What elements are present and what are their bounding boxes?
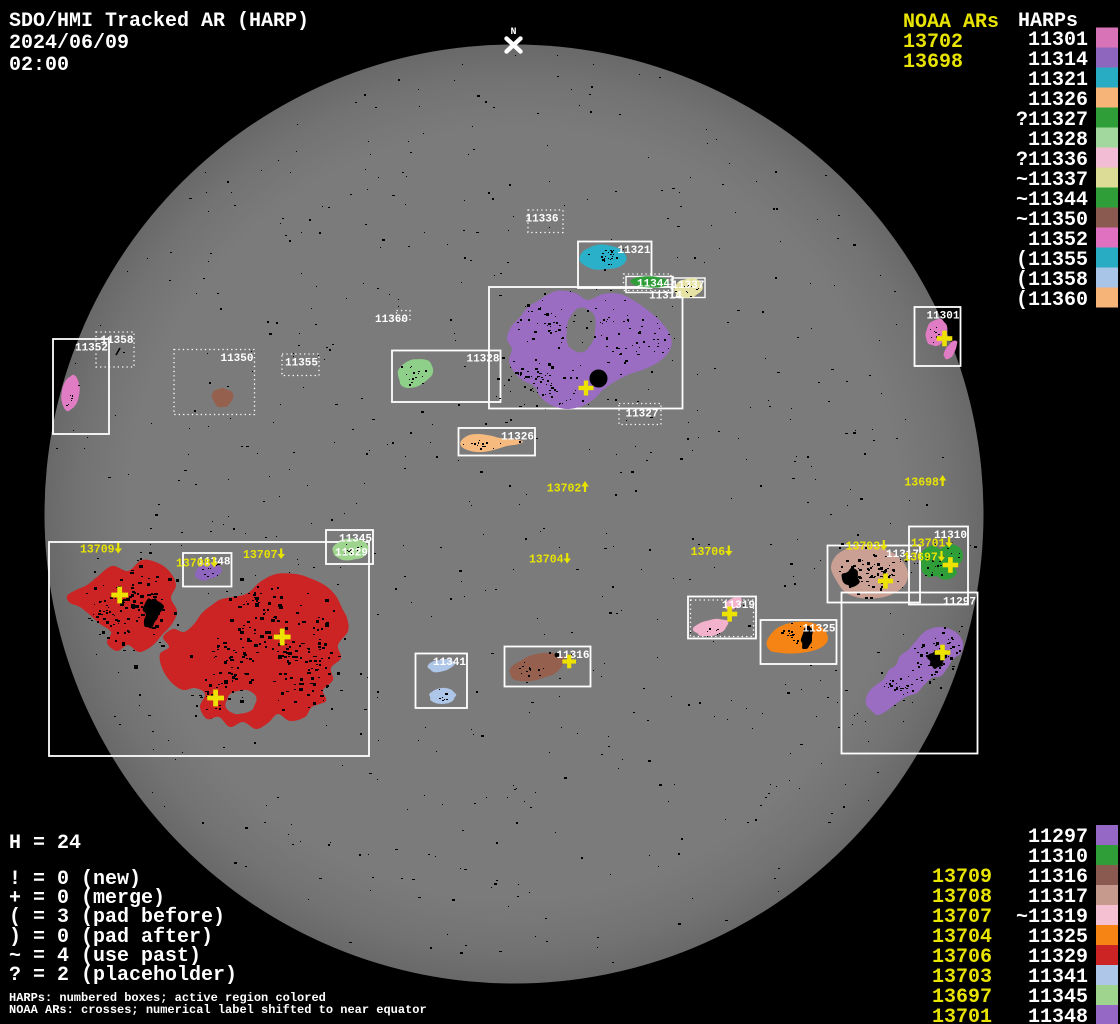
svg-text:11321: 11321 [617, 245, 650, 257]
svg-text:11329: 11329 [335, 548, 368, 560]
svg-text:N: N [510, 27, 516, 38]
svg-text:SDO/HMI Tracked AR (HARP): SDO/HMI Tracked AR (HARP) [9, 10, 309, 33]
svg-text:13701: 13701 [911, 538, 946, 551]
svg-text:11327: 11327 [625, 409, 658, 421]
svg-text:13703: 13703 [846, 541, 881, 554]
svg-text:(11360: (11360 [1016, 289, 1088, 312]
svg-text:11301: 11301 [926, 311, 959, 323]
svg-text:11319: 11319 [722, 600, 755, 612]
svg-text:11326: 11326 [501, 432, 534, 444]
svg-text:11350: 11350 [220, 353, 253, 365]
svg-text:13709: 13709 [80, 544, 115, 557]
svg-text:11336: 11336 [525, 214, 558, 226]
svg-text:11314: 11314 [649, 291, 682, 303]
svg-text:02:00: 02:00 [9, 54, 69, 77]
svg-text:11328: 11328 [466, 354, 499, 366]
svg-text:? = 2 (placeholder): ? = 2 (placeholder) [9, 964, 237, 987]
svg-text:11325: 11325 [802, 624, 835, 636]
svg-text:11344: 11344 [637, 279, 670, 291]
svg-text:11360: 11360 [375, 314, 408, 326]
svg-text:13708: 13708 [176, 558, 211, 571]
svg-text:11341: 11341 [433, 657, 466, 669]
svg-text:13704: 13704 [529, 554, 564, 567]
svg-text:2024/06/09: 2024/06/09 [9, 32, 129, 55]
svg-text:NOAA ARs: crosses; numerical l: NOAA ARs: crosses; numerical label shift… [9, 1003, 427, 1017]
svg-text:13698: 13698 [904, 477, 939, 490]
svg-text:11348: 11348 [1028, 1006, 1088, 1024]
svg-text:13702: 13702 [547, 483, 582, 496]
svg-text:H = 24: H = 24 [9, 832, 81, 855]
svg-text:13698: 13698 [903, 51, 963, 74]
svg-text:11358: 11358 [100, 335, 133, 347]
svg-text:11297: 11297 [943, 597, 976, 609]
svg-text:13697: 13697 [903, 552, 938, 565]
svg-text:11345: 11345 [339, 534, 372, 546]
svg-text:11355: 11355 [285, 358, 318, 370]
svg-text:13701: 13701 [932, 1006, 992, 1024]
svg-text:13706: 13706 [691, 546, 726, 559]
svg-text:13707: 13707 [243, 549, 278, 562]
